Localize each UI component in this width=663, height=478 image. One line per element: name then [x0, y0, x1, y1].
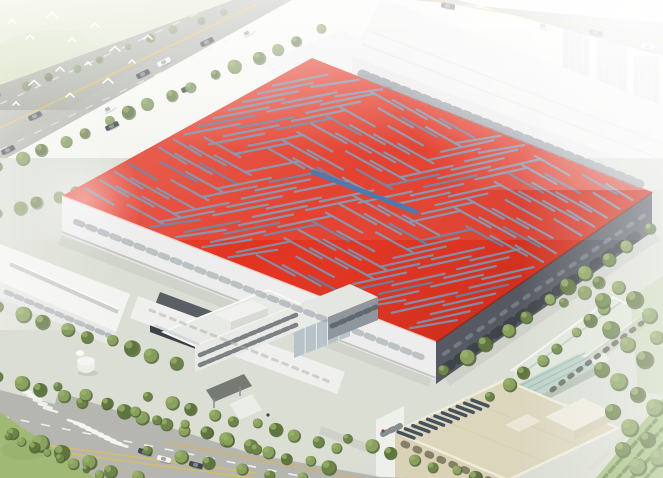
haze-left — [0, 110, 120, 330]
tree — [16, 377, 23, 384]
tree — [102, 398, 107, 403]
tree — [176, 451, 182, 457]
tree — [479, 337, 486, 344]
tree — [133, 471, 139, 477]
tree — [428, 463, 433, 468]
tree — [201, 427, 207, 433]
tree — [332, 443, 337, 448]
tree — [30, 442, 35, 447]
tree — [144, 446, 148, 450]
tree — [237, 464, 242, 469]
tree — [470, 471, 476, 477]
tree — [203, 457, 209, 463]
tree — [95, 471, 99, 475]
tree — [282, 454, 287, 459]
tree — [223, 436, 228, 441]
tree — [322, 461, 329, 468]
tree — [83, 466, 86, 469]
aerial-rendering — [0, 0, 663, 478]
tree — [153, 416, 158, 421]
tree — [83, 456, 90, 463]
tree — [17, 438, 21, 442]
tree — [80, 389, 86, 395]
tree — [385, 447, 391, 453]
tree — [125, 341, 132, 348]
tree — [344, 434, 348, 438]
tree — [252, 445, 257, 450]
tree — [5, 433, 8, 436]
scene-root — [0, 0, 663, 478]
tree — [503, 325, 509, 331]
tree — [34, 384, 40, 390]
tree — [44, 449, 47, 452]
tree — [59, 391, 65, 397]
tree — [461, 350, 468, 357]
tree — [265, 471, 270, 476]
person — [271, 417, 274, 420]
tree — [453, 466, 457, 470]
person — [266, 413, 269, 416]
tree — [181, 420, 185, 424]
tree — [171, 357, 177, 363]
gatehouse-cap — [77, 357, 95, 366]
tree — [185, 403, 191, 409]
tree — [410, 455, 415, 460]
tree — [54, 383, 58, 387]
tree — [504, 379, 510, 385]
tree — [118, 405, 125, 412]
tree — [56, 454, 60, 458]
tree — [245, 440, 251, 446]
tree — [166, 397, 172, 403]
tree — [144, 392, 148, 396]
tree — [131, 407, 136, 412]
tree — [263, 447, 269, 453]
tree — [289, 430, 295, 436]
tree — [229, 417, 234, 422]
tree — [145, 349, 152, 356]
tree — [55, 446, 62, 453]
tree — [108, 335, 113, 340]
tree — [270, 423, 276, 429]
tree — [253, 419, 257, 423]
tree — [439, 366, 444, 371]
tree — [306, 456, 311, 461]
tree — [69, 459, 74, 464]
tree — [210, 410, 215, 415]
tree — [366, 440, 372, 446]
tree — [486, 392, 490, 396]
tree — [299, 473, 303, 477]
tree — [82, 332, 88, 338]
tree — [314, 437, 319, 442]
haze-right — [520, 0, 663, 478]
gatehouse-top — [76, 350, 84, 356]
tree — [105, 466, 111, 472]
